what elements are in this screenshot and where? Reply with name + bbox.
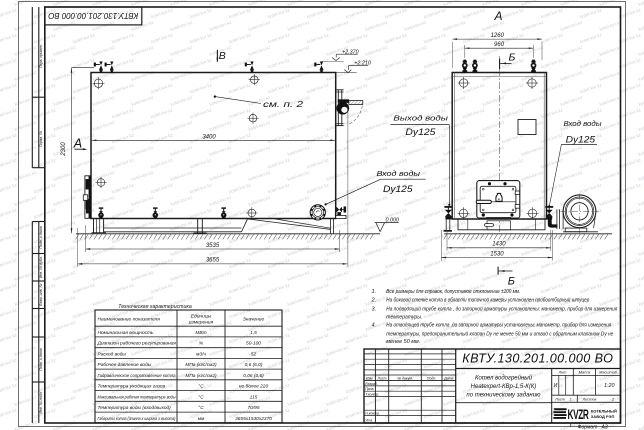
svg-text:4.: 4. [372, 323, 377, 329]
svg-text:0,6 (6,0): 0,6 (6,0) [245, 362, 263, 368]
svg-text:КВТУ.130.201.00.000 ВО: КВТУ.130.201.00.000 ВО [48, 11, 138, 21]
svg-text:Dy125: Dy125 [566, 135, 596, 146]
svg-text:На боковой стенке котла в обла: На боковой стенке котла в области топочн… [386, 297, 589, 304]
svg-text:температуры.: температуры. [386, 315, 422, 321]
svg-text:52: 52 [251, 351, 257, 357]
svg-text:Н.контр.: Н.контр. [365, 412, 380, 416]
svg-text:Номинальная мощность: Номинальная мощность [98, 330, 155, 336]
svg-text:Изм.: Изм. [366, 376, 373, 380]
svg-text:3.: 3. [372, 307, 377, 313]
svg-text:МПа (кгс/см2): МПа (кгс/см2) [185, 373, 217, 379]
svg-text:Единицы: Единицы [191, 314, 212, 320]
svg-text:1260: 1260 [491, 33, 505, 39]
svg-text:температуры, предохранительный: температуры, предохранительный клапан Dу… [386, 331, 613, 338]
svg-text:Вход воды: Вход воды [564, 119, 603, 128]
svg-text:Подп.: Подп. [427, 376, 436, 380]
svg-text:измерения: измерения [189, 320, 214, 325]
svg-text:Dy125: Dy125 [383, 184, 413, 195]
svg-text:1:20: 1:20 [604, 383, 615, 389]
svg-text:не более 220: не более 220 [239, 384, 269, 390]
svg-text:Б: Б [509, 51, 516, 63]
svg-text:°С: °С [198, 394, 204, 400]
svg-text:0.000: 0.000 [386, 217, 400, 223]
svg-text:Температура уходящих газов: Температура уходящих газов [98, 384, 166, 390]
svg-text:Все размеры для справок, допус: Все размеры для справок, допустимое откл… [386, 289, 520, 295]
svg-text:Инв. № дубл.: Инв. № дубл. [39, 256, 43, 278]
svg-text:Техническая характеристика: Техническая характеристика [118, 304, 192, 310]
svg-text:2.: 2. [371, 298, 377, 304]
svg-text:%: % [199, 341, 204, 347]
svg-text:м3/ч: м3/ч [196, 351, 206, 357]
svg-text:КВТУ.130.201.00.000 ВО: КВТУ.130.201.00.000 ВО [462, 352, 613, 366]
svg-text:Расход воды: Расход воды [98, 351, 127, 357]
svg-text:На подводящий трубе котла , д: На подводящий трубе котла , до запорной … [386, 306, 617, 313]
svg-text:°С: °С [198, 405, 204, 411]
svg-text:1: 1 [570, 398, 572, 402]
svg-text:А3: А3 [601, 425, 608, 430]
svg-text:115: 115 [250, 394, 258, 400]
svg-text:Лит: Лит [558, 371, 567, 375]
svg-text:Котел водогрейный: Котел водогрейный [475, 374, 533, 381]
svg-text:Утв.: Утв. [365, 418, 373, 422]
svg-text:На отводящей трубе котла ,до з: На отводящей трубе котла ,до запорной ар… [386, 322, 611, 329]
svg-text:МПа (кгс/см2): МПа (кгс/см2) [185, 362, 217, 368]
svg-text:КОТЕЛЬНЫЙ: КОТЕЛЬНЫЙ [591, 409, 617, 414]
svg-text:по техническому заданию: по техническому заданию [466, 393, 541, 399]
svg-text:Температура воды (вход/выход): Температура воды (вход/выход) [98, 405, 172, 411]
svg-text:см. п. 2: см. п. 2 [263, 99, 303, 109]
svg-text:Перв. примен.: Перв. примен. [39, 44, 43, 68]
svg-text:Heatexpert-КВр-1,5-К(К): Heatexpert-КВр-1,5-К(К) [471, 384, 537, 390]
svg-text:Дата: Дата [443, 376, 453, 380]
svg-text:Взам. инв. №: Взам. инв. № [39, 283, 43, 305]
svg-text:Б: Б [508, 276, 515, 288]
svg-text:0,06 (0,6): 0,06 (0,6) [243, 373, 264, 379]
svg-text:Максимальная рабочая температу: Максимальная рабочая температура воды [98, 394, 176, 400]
svg-text:Пров.: Пров. [365, 387, 374, 391]
svg-text:Габариты котла (длинна х ширин: Габариты котла (длинна х ширина х высота… [98, 416, 176, 422]
svg-text:А: А [494, 9, 503, 23]
svg-text:Рабочее давление воды: Рабочее давление воды [98, 362, 152, 368]
svg-text:3655: 3655 [206, 258, 220, 264]
svg-text:мм: мм [198, 417, 205, 422]
svg-text:KVZR: KVZR [568, 407, 590, 422]
svg-text:А: А [73, 137, 82, 151]
svg-text:Разраб.: Разраб. [365, 382, 378, 386]
svg-text:МВт: МВт [195, 330, 206, 336]
svg-text:50-100: 50-100 [246, 341, 261, 347]
svg-text:Инв. № подл.: Инв. № подл. [39, 391, 43, 413]
svg-text:1.: 1. [372, 289, 377, 295]
svg-text:2300: 2300 [61, 142, 67, 157]
svg-text:ЗАВОД РЭП: ЗАВОД РЭП [591, 414, 615, 419]
svg-text:Листов: Листов [582, 398, 597, 402]
svg-text:Лист: Лист [376, 376, 386, 380]
svg-text:3535: 3535 [206, 243, 220, 249]
svg-text:Значение: Значение [243, 317, 265, 323]
svg-text:Подп. и дата: Подп. и дата [39, 348, 43, 371]
svg-text:Лист: Лист [554, 398, 565, 402]
svg-text:1530: 1530 [490, 251, 504, 257]
svg-text:Диапазон рабочего регулировани: Диапазон рабочего регулирования [97, 341, 177, 347]
svg-text:Справ. №: Справ. № [39, 131, 43, 147]
svg-text:1430: 1430 [492, 242, 506, 248]
svg-text:Dy125: Dy125 [405, 127, 436, 138]
svg-text:И: И [554, 383, 558, 389]
svg-text:Наименование показателя: Наименование показателя [98, 317, 161, 323]
svg-text:960: 960 [494, 42, 505, 48]
svg-text:1,5: 1,5 [250, 330, 257, 336]
svg-text:Выход воды: Выход воды [393, 113, 448, 122]
svg-text:В: В [219, 50, 226, 62]
svg-text:Масса: Масса [579, 371, 590, 375]
svg-text:Подп. и дата: Подп. и дата [39, 226, 43, 249]
svg-text:Т.контр.: Т.контр. [365, 393, 379, 397]
svg-text:№ докум.: № докум. [397, 376, 412, 380]
svg-text:3400: 3400 [202, 135, 216, 141]
svg-text:Гидравлическое сопротивление к: Гидравлическое сопротивление котла [98, 373, 176, 379]
svg-text:Вход воды: Вход воды [377, 169, 421, 178]
svg-text:менее 50 мм.: менее 50 мм. [386, 339, 420, 345]
svg-text:Формат: Формат [578, 425, 598, 430]
svg-text:°С: °С [198, 384, 204, 390]
svg-text:70/95: 70/95 [247, 405, 259, 411]
svg-text:Масштаб: Масштаб [599, 371, 618, 375]
svg-text:3655х1530х2370: 3655х1530х2370 [235, 416, 272, 422]
